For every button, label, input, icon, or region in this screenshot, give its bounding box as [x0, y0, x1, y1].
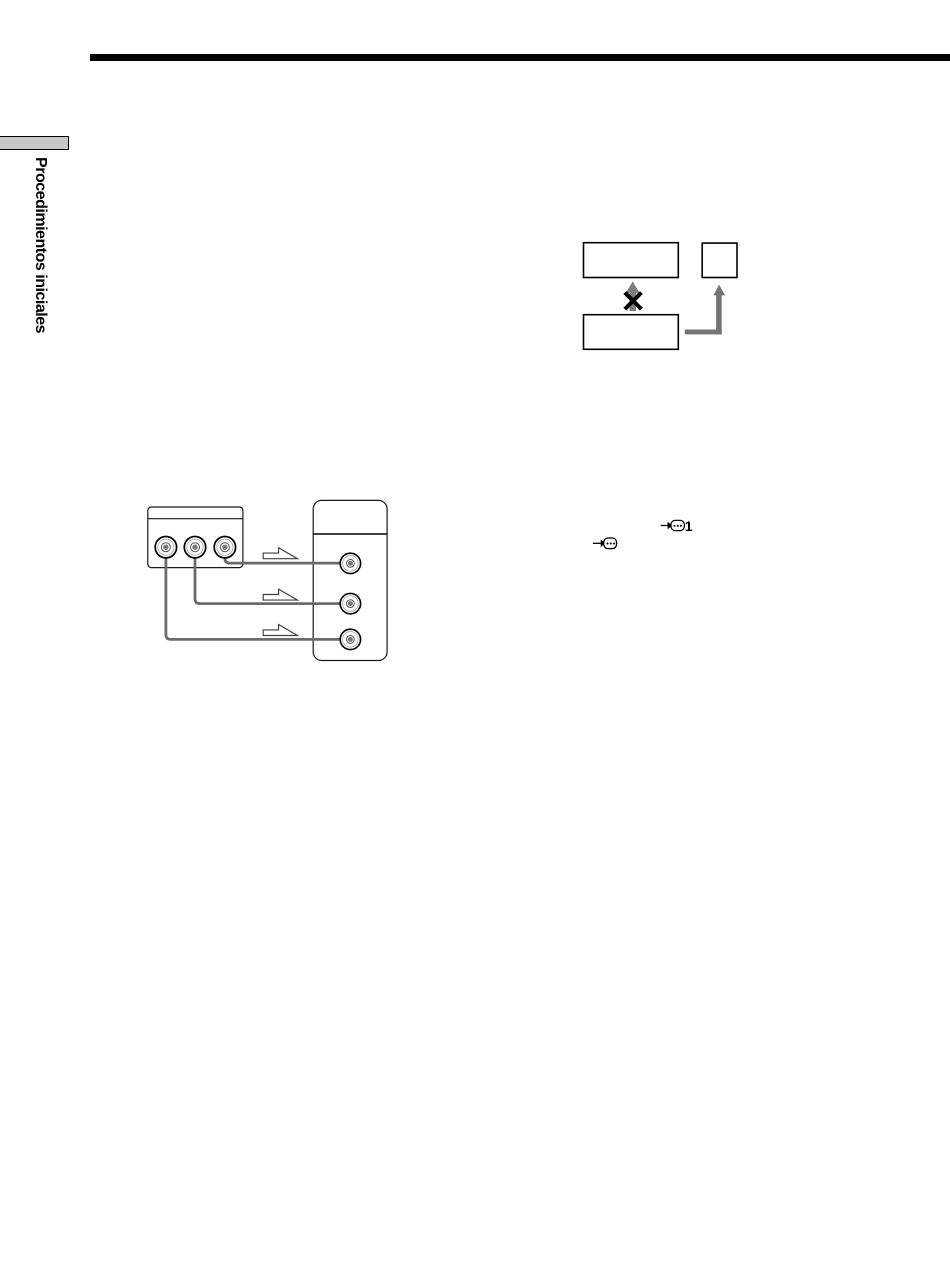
- svg-text:1: 1: [685, 518, 693, 534]
